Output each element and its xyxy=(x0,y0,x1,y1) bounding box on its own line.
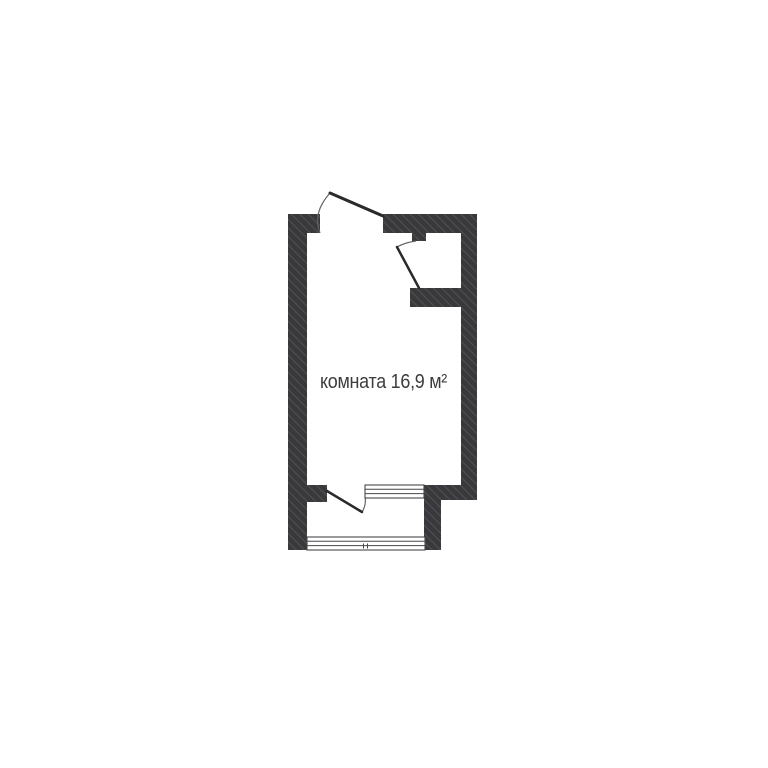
wall-left xyxy=(288,214,307,550)
balcony-divider-right-wall xyxy=(424,485,477,500)
floorplan-canvas: комната 16,9 м² xyxy=(0,0,768,768)
room-balcony-window xyxy=(365,485,424,498)
balcony-window-frame xyxy=(307,537,425,550)
balcony-window xyxy=(307,537,425,550)
wall-top-right-segment xyxy=(383,214,477,233)
wall-top-left-segment xyxy=(288,214,320,233)
floorplan-page: комната 16,9 м² xyxy=(0,0,768,768)
wall-right xyxy=(461,233,477,500)
room-balcony-window-frame xyxy=(365,485,424,498)
room-area-label: комната 16,9 м² xyxy=(320,370,447,393)
balcony-right-wall xyxy=(424,500,441,550)
balcony-divider-left-stub-wall xyxy=(307,485,327,502)
niche-top-stub-wall xyxy=(412,233,426,241)
niche-bottom-wall xyxy=(410,288,477,307)
